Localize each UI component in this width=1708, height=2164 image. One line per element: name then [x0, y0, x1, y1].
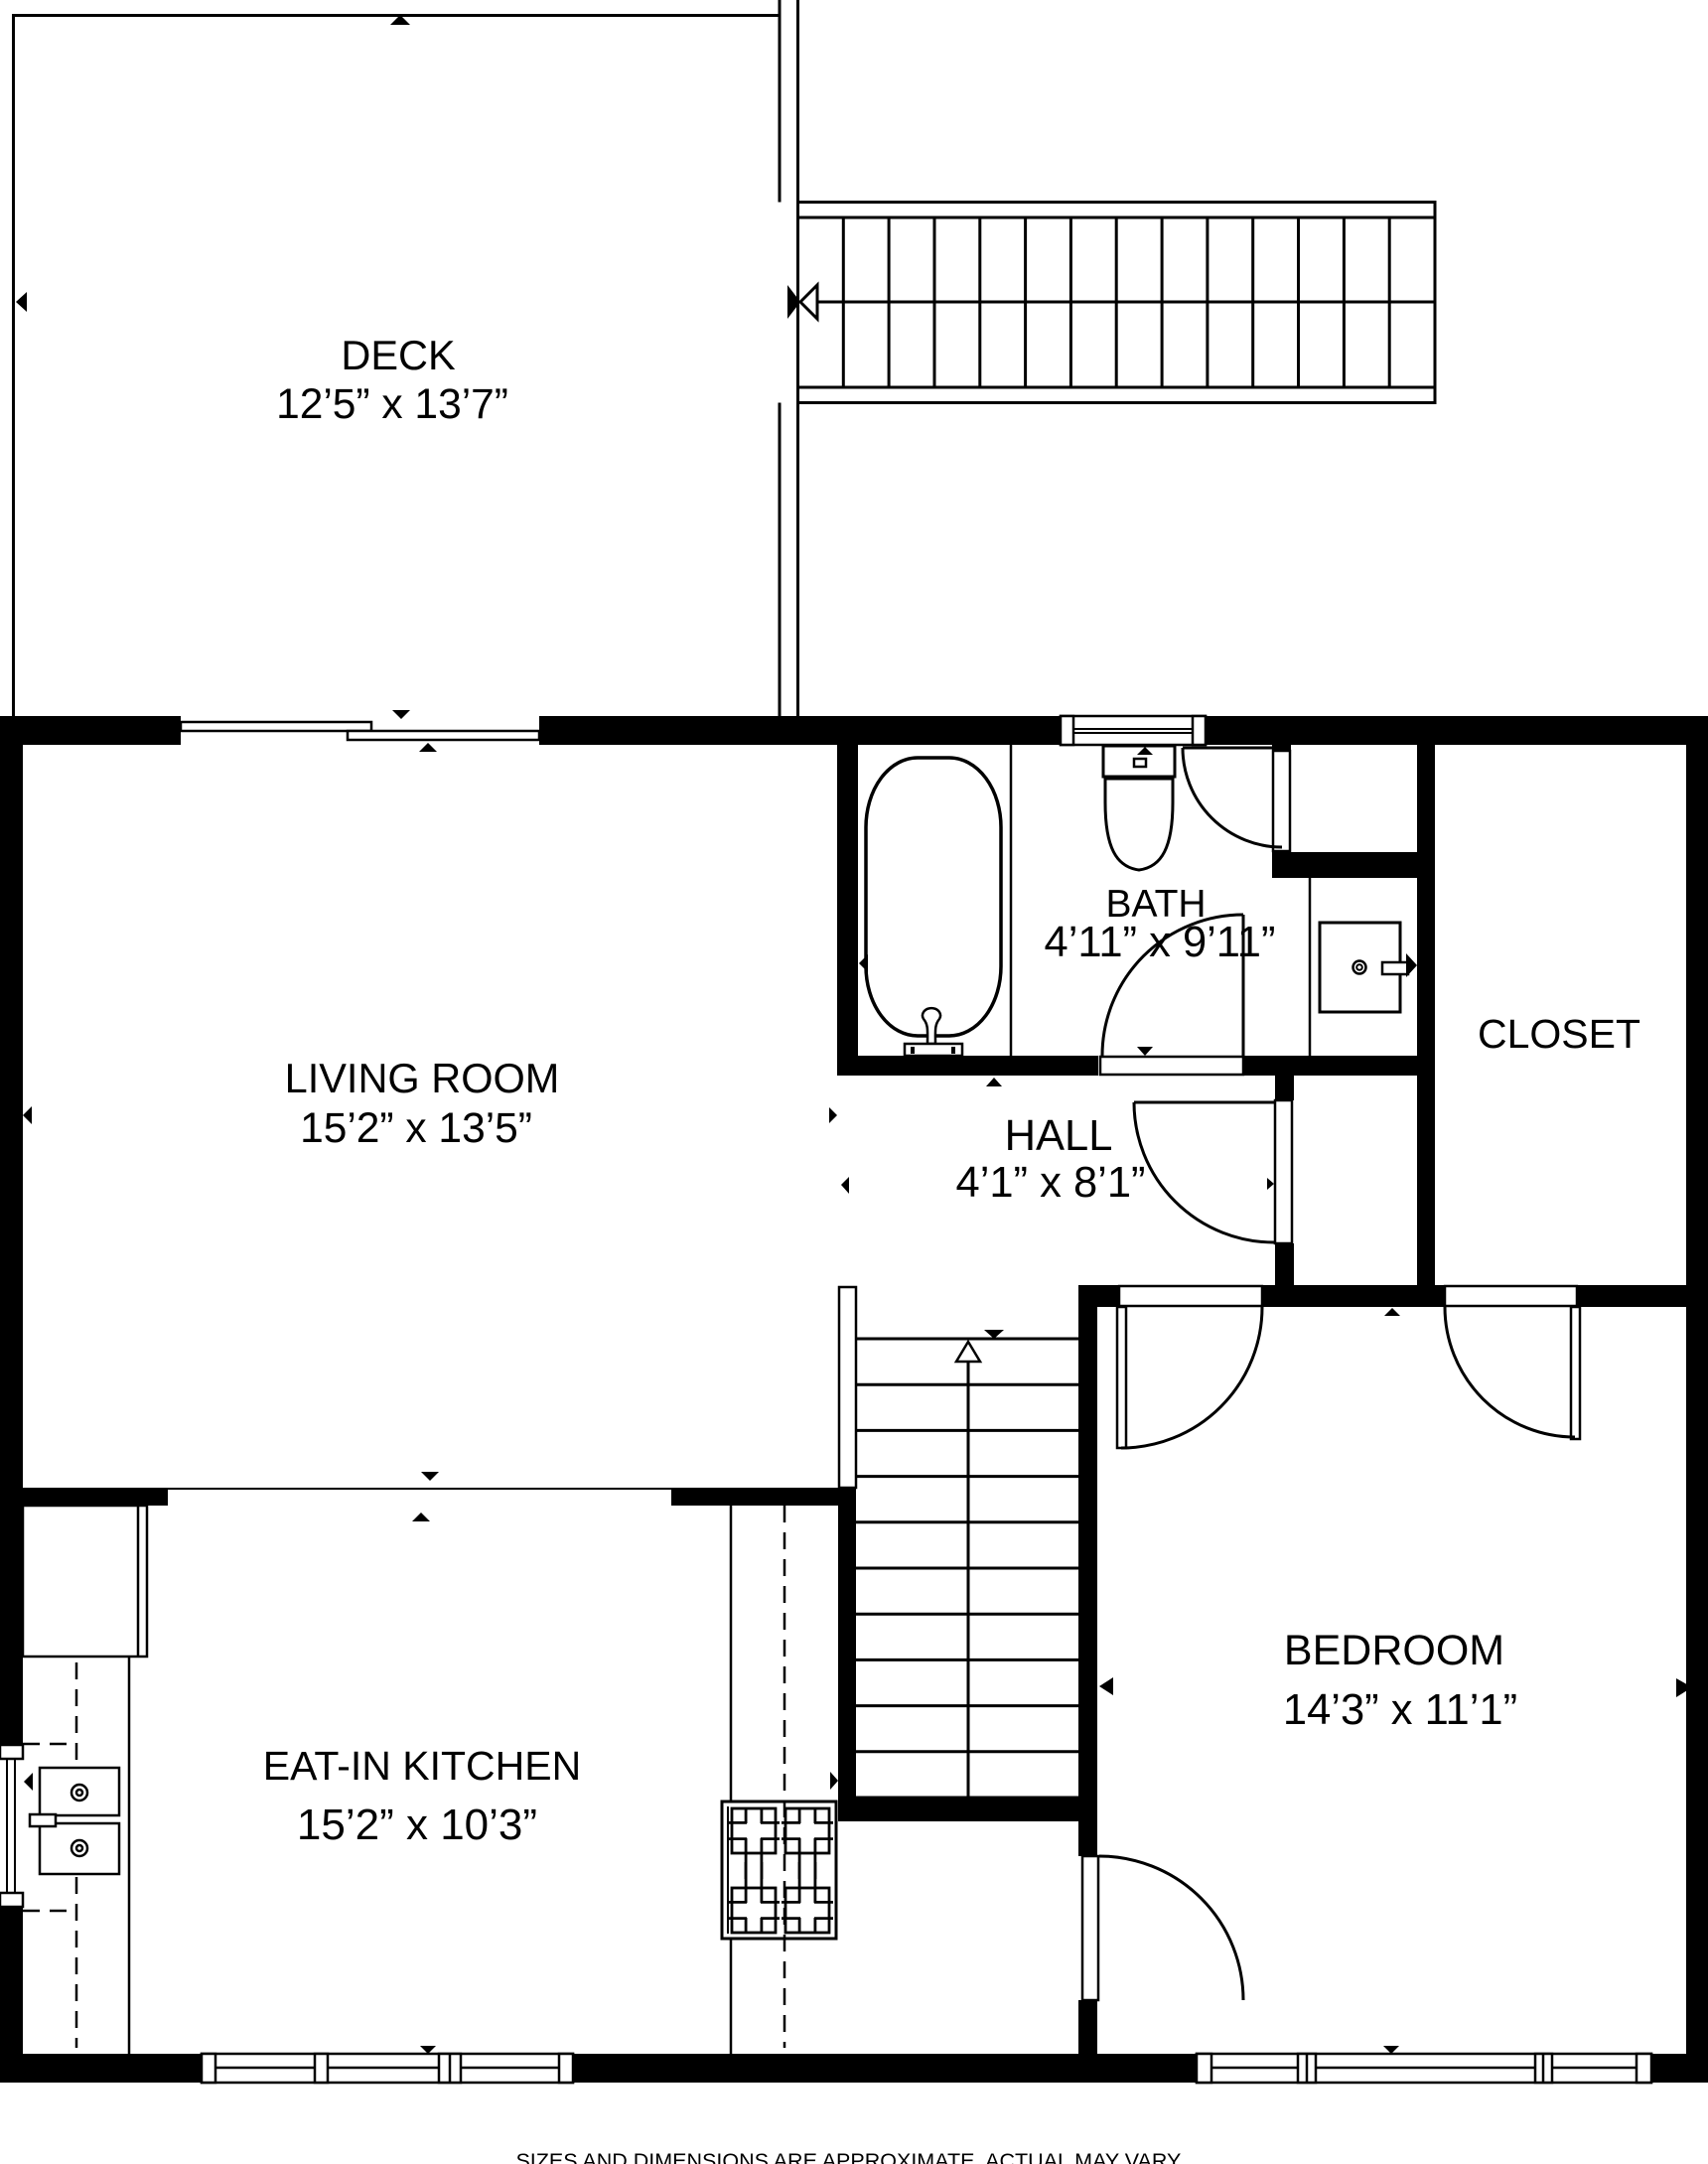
svg-text:CLOSET: CLOSET — [1478, 1011, 1640, 1057]
svg-text:15’2” x 10’3”: 15’2” x 10’3” — [297, 1801, 537, 1849]
svg-text:14’3” x 11’1”: 14’3” x 11’1” — [1283, 1686, 1517, 1734]
svg-text:HALL: HALL — [1005, 1112, 1113, 1160]
svg-text:15’2” x 13’5”: 15’2” x 13’5” — [300, 1105, 532, 1152]
svg-text:LIVING ROOM: LIVING ROOM — [285, 1055, 560, 1101]
svg-text:DECK: DECK — [341, 332, 456, 378]
svg-text:BEDROOM: BEDROOM — [1284, 1627, 1504, 1674]
svg-text:SIZES AND DIMENSIONS ARE APPRO: SIZES AND DIMENSIONS ARE APPROXIMATE, AC… — [515, 2149, 1184, 2164]
svg-text:4’11” x 9’11”: 4’11” x 9’11” — [1045, 919, 1276, 966]
svg-text:EAT-IN KITCHEN: EAT-IN KITCHEN — [263, 1743, 581, 1789]
svg-text:12’5” x 13’7”: 12’5” x 13’7” — [276, 381, 508, 428]
svg-text:4’1” x 8’1”: 4’1” x 8’1” — [956, 1159, 1146, 1207]
